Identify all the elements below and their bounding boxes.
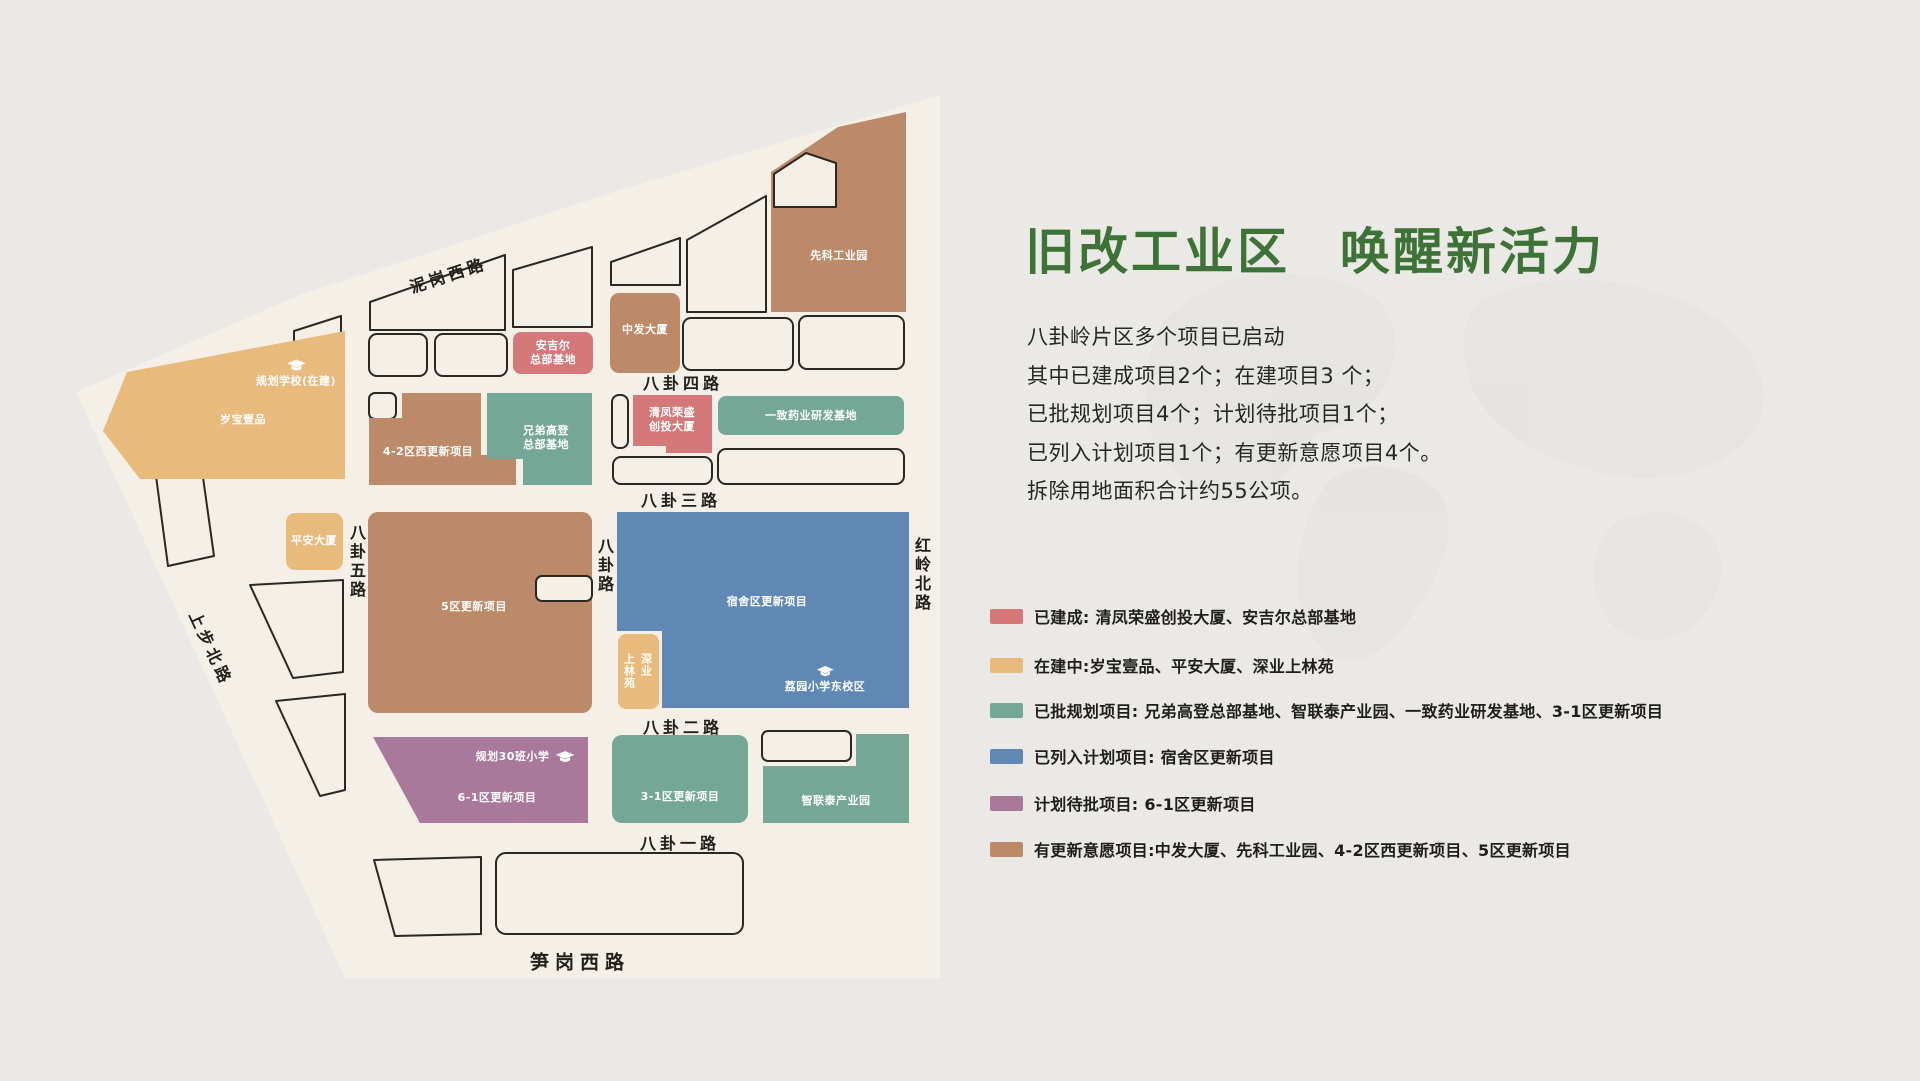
legend-label-pending: 计划待批项目: 6-1区更新项目 bbox=[1034, 791, 1256, 815]
page-title-part1: 旧改工业区 bbox=[1025, 212, 1290, 284]
xiongdi-line2: 总部基地 bbox=[523, 438, 569, 452]
label-qu61: 6-1区更新项目 bbox=[458, 791, 537, 805]
label-zhiliantai-park: 智联泰产业园 bbox=[802, 794, 871, 808]
page-title-part2: 唤醒新活力 bbox=[1340, 212, 1605, 284]
graduation-cap-icon bbox=[817, 666, 834, 678]
lot-qu5-notch bbox=[536, 576, 592, 601]
label-shenye-shanglinyuan: 上林苑 深业 bbox=[621, 653, 654, 689]
lot-row1-left1 bbox=[369, 334, 427, 376]
map-canvas bbox=[0, 0, 1920, 1081]
label-xianke-park: 先科工业园 bbox=[810, 249, 868, 263]
urban-renewal-infographic: 泥岗西路 八卦四路 八卦三路 八卦二路 八卦一路 笋岗西路 上步北路 八卦五路 … bbox=[0, 0, 1920, 1081]
intro-paragraph: 八卦岭片区多个项目已启动 其中已建成项目2个；在建项目3 个； 已批规划项目4个… bbox=[1027, 318, 1442, 511]
legend-swatch-listed bbox=[990, 749, 1023, 764]
graduation-cap-icon bbox=[287, 360, 306, 373]
page-title: 旧改工业区 唤醒新活力 bbox=[1025, 212, 1605, 284]
legend-row-approved: 已批规划项目: 兄弟高登总部基地、智联泰产业园、一致药业研发基地、3-1区更新项… bbox=[990, 700, 1663, 720]
legend-row-built: 已建成: 清凤荣盛创投大厦、安吉尔总部基地 bbox=[990, 606, 1356, 626]
legend-label-listed: 已列入计划项目: 宿舍区更新项目 bbox=[1034, 744, 1275, 768]
legend-row-under-construction: 在建中:岁宝壹品、平安大厦、深业上林苑 bbox=[990, 655, 1334, 675]
lot-row2-slim bbox=[612, 395, 628, 448]
shenye-col-left: 上林苑 bbox=[621, 653, 637, 689]
legend-row-listed: 已列入计划项目: 宿舍区更新项目 bbox=[990, 746, 1275, 766]
label-pingan-tower: 平安大厦 bbox=[291, 534, 337, 548]
legend-swatch-pending bbox=[990, 796, 1023, 811]
legend-swatch-under-construction bbox=[990, 658, 1023, 673]
lot-bottom-2 bbox=[496, 853, 743, 934]
lot-row2-wide2 bbox=[718, 449, 904, 484]
label-planned-school: 规划学校(在建) bbox=[256, 360, 336, 389]
legend-label-built: 已建成: 清凤荣盛创投大厦、安吉尔总部基地 bbox=[1034, 604, 1356, 628]
qingfeng-line2: 创投大厦 bbox=[649, 420, 695, 434]
label-school30: 规划30班小学 bbox=[476, 750, 575, 764]
label-anjier-hq: 安吉尔 总部基地 bbox=[530, 339, 576, 367]
intro-line: 已批规划项目4个；计划待批项目1个； bbox=[1027, 395, 1442, 434]
lot-row1-right1 bbox=[683, 318, 793, 370]
shenye-col-right: 深业 bbox=[638, 653, 654, 689]
label-liyuan-school: 荔园小学东校区 bbox=[785, 666, 866, 694]
intro-line: 拆除用地面积合计约55公项。 bbox=[1027, 472, 1442, 511]
legend-label-approved: 已批规划项目: 兄弟高登总部基地、智联泰产业园、一致药业研发基地、3-1区更新项… bbox=[1034, 698, 1663, 722]
road-bagua4: 八卦四路 bbox=[643, 370, 723, 394]
legend-label-intent: 有更新意愿项目:中发大厦、先科工业园、4-2区西更新项目、5区更新项目 bbox=[1034, 837, 1571, 861]
intro-line: 已列入计划项目1个；有更新意愿项目4个。 bbox=[1027, 434, 1442, 473]
lot-row1-left2 bbox=[435, 334, 507, 376]
lot-row2-wide1 bbox=[613, 457, 712, 484]
qingfeng-line1: 清凤荣盛 bbox=[649, 406, 695, 420]
school30-text: 规划30班小学 bbox=[476, 750, 550, 764]
road-bagua-mid: 八卦路 bbox=[592, 538, 616, 595]
label-suibao-yipin: 岁宝壹品 bbox=[220, 413, 266, 427]
legend-swatch-intent bbox=[990, 842, 1023, 857]
road-bagua3: 八卦三路 bbox=[641, 487, 721, 511]
road-bagua2: 八卦二路 bbox=[643, 714, 723, 738]
label-sushe-dorm: 宿舍区更新项目 bbox=[727, 595, 808, 609]
label-qu5: 5区更新项目 bbox=[441, 600, 507, 614]
road-bagua5: 八卦五路 bbox=[344, 524, 368, 600]
lot-zhiliantai-top bbox=[762, 731, 851, 761]
anjier-line1: 安吉尔 bbox=[530, 339, 576, 353]
legend-label-under-construction: 在建中:岁宝壹品、平安大厦、深业上林苑 bbox=[1034, 653, 1334, 677]
intro-line: 八卦岭片区多个项目已启动 bbox=[1027, 318, 1442, 357]
legend-row-pending: 计划待批项目: 6-1区更新项目 bbox=[990, 793, 1256, 813]
legend-swatch-built bbox=[990, 609, 1023, 624]
liyuan-school-text: 荔园小学东校区 bbox=[785, 680, 866, 694]
planned-school-text: 规划学校(在建) bbox=[256, 375, 336, 389]
lot-row2-square bbox=[369, 393, 396, 419]
legend-swatch-approved bbox=[990, 703, 1023, 718]
label-yizhi-pharma: 一致药业研发基地 bbox=[765, 409, 857, 423]
block-qu31 bbox=[612, 735, 748, 823]
label-qu42-west: 4-2区西更新项目 bbox=[383, 445, 473, 459]
anjier-line2: 总部基地 bbox=[530, 353, 576, 367]
label-zhongfa-tower: 中发大厦 bbox=[622, 323, 668, 337]
legend-row-intent: 有更新意愿项目:中发大厦、先科工业园、4-2区西更新项目、5区更新项目 bbox=[990, 839, 1571, 859]
lot-row1-right2 bbox=[799, 316, 904, 369]
graduation-cap-icon bbox=[555, 751, 574, 764]
label-xiongdi-gaodeng: 兄弟高登 总部基地 bbox=[523, 424, 569, 452]
xiongdi-line1: 兄弟高登 bbox=[523, 424, 569, 438]
road-sungang-west: 笋岗西路 bbox=[530, 948, 630, 975]
label-qu31: 3-1区更新项目 bbox=[641, 790, 720, 804]
road-bagua1: 八卦一路 bbox=[640, 830, 720, 854]
intro-line: 其中已建成项目2个；在建项目3 个； bbox=[1027, 357, 1442, 396]
label-qingfeng-rongsheng: 清凤荣盛 创投大厦 bbox=[649, 406, 695, 434]
road-hongling-north: 红岭北路 bbox=[909, 537, 933, 613]
